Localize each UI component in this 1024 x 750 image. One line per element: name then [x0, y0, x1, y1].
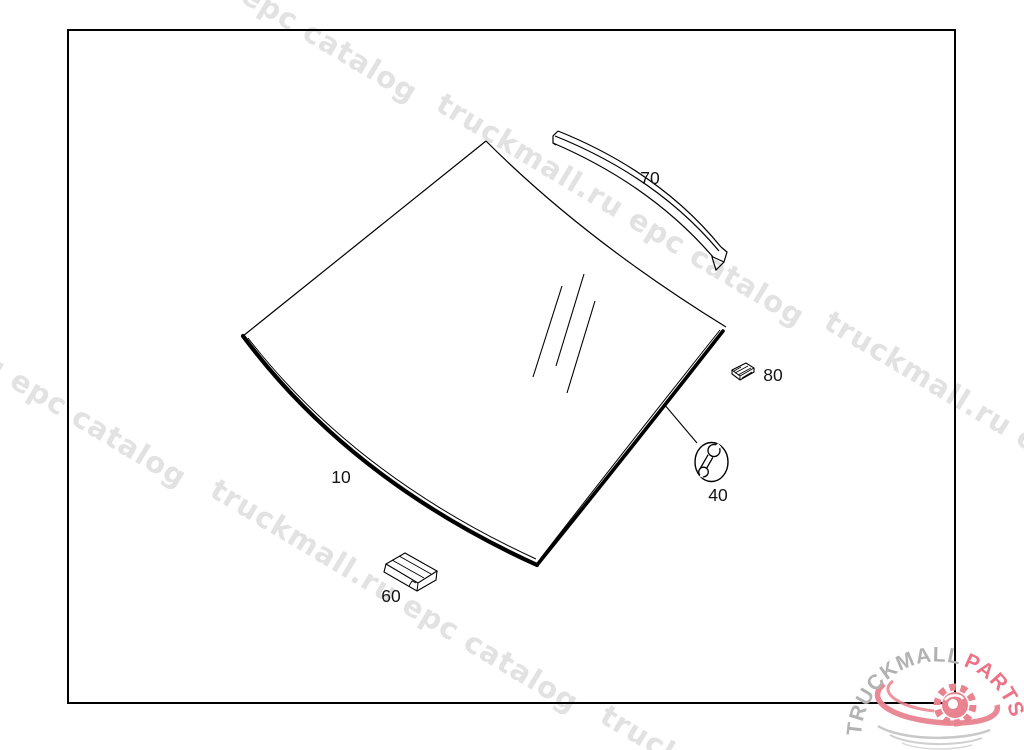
lower-clip-top-face	[386, 553, 437, 583]
part-top-moulding[interactable]	[553, 131, 727, 270]
callout-70[interactable]: 70	[640, 168, 660, 188]
callout-10[interactable]: 10	[331, 467, 351, 487]
glass-top-left-edge	[243, 141, 486, 336]
diagram-border	[68, 30, 955, 703]
logo-swirl-echo	[888, 681, 934, 711]
moulding-right-cap-edge	[713, 257, 724, 262]
wrench-jaw-opening	[701, 472, 704, 477]
callout-60[interactable]: 60	[381, 586, 401, 606]
moulding-left-cap	[553, 131, 558, 145]
moulding-inner-curve	[553, 143, 713, 257]
glass-inner-edge	[540, 330, 720, 559]
part-windshield-glass[interactable]	[243, 141, 726, 565]
workshop-wrench-symbol[interactable]	[664, 404, 728, 482]
glass-reflection-line	[533, 286, 562, 377]
glass-bottom-right-edge	[537, 331, 723, 565]
gear-hub	[948, 699, 958, 709]
diagram-svg: 10 70 80 40 60 TRUCKMALL PARTS	[0, 0, 1024, 750]
glass-bottom-left-edge	[243, 336, 537, 565]
part-side-clip[interactable]	[732, 363, 754, 380]
lower-clip-corner-edge	[417, 583, 418, 591]
truckmall-logo: TRUCKMALL PARTS	[843, 643, 1024, 749]
logo-brand-text: TRUCKMALL PARTS	[843, 643, 1024, 743]
logo-underline-swirl	[878, 726, 990, 738]
callout-40[interactable]: 40	[708, 485, 728, 505]
glass-inner-edge	[248, 338, 536, 559]
moulding-mid-curve	[555, 136, 719, 251]
moulding-right-cap	[712, 247, 727, 270]
parts-diagram-canvas: truckmall.ru epc catalog truckmall.ru ep…	[0, 0, 1024, 750]
callout-80[interactable]: 80	[763, 365, 783, 385]
leader-line	[664, 404, 697, 443]
